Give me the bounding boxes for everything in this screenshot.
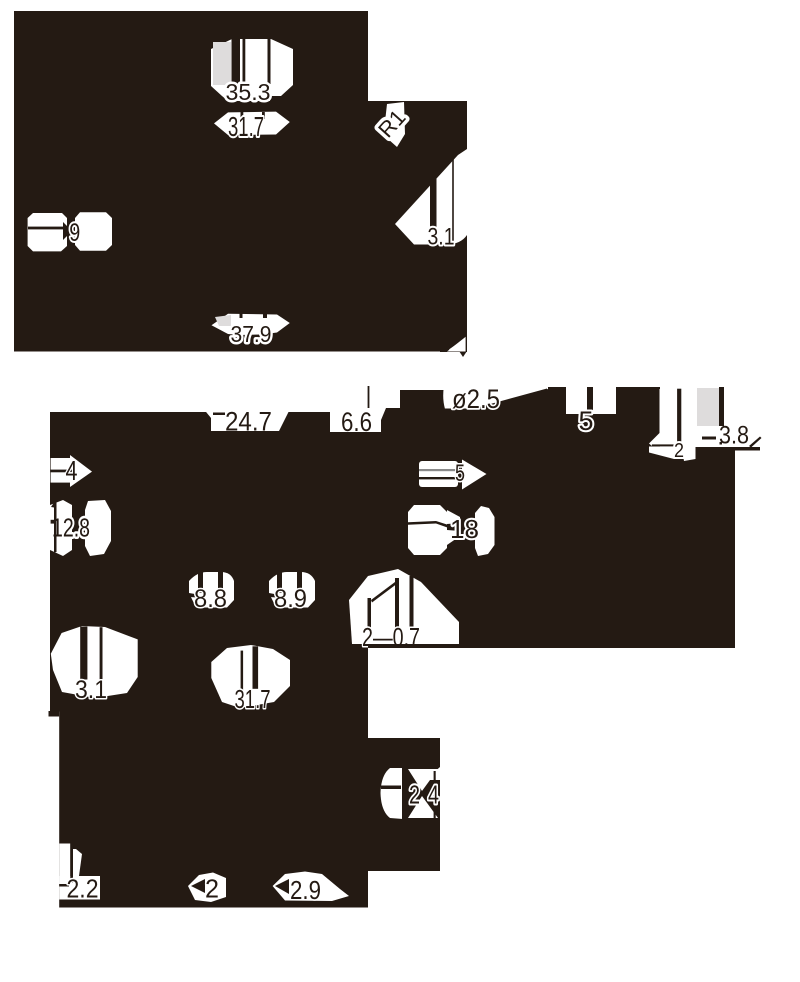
svg-text:ø2.5: ø2.5 bbox=[452, 384, 500, 414]
svg-text:3.1: 3.1 bbox=[75, 676, 107, 704]
svg-text:2: 2 bbox=[674, 440, 684, 462]
svg-text:9: 9 bbox=[69, 219, 80, 247]
svg-text:3.1: 3.1 bbox=[428, 224, 455, 251]
svg-text:4: 4 bbox=[428, 780, 439, 810]
svg-text:2.9: 2.9 bbox=[290, 875, 321, 905]
svg-text:18: 18 bbox=[450, 514, 479, 544]
svg-text:24.7: 24.7 bbox=[225, 407, 272, 437]
svg-text:5: 5 bbox=[455, 460, 465, 487]
svg-text:31.7: 31.7 bbox=[228, 111, 264, 142]
svg-text:2: 2 bbox=[205, 874, 219, 904]
svg-text:31.7: 31.7 bbox=[235, 684, 271, 714]
svg-text:4: 4 bbox=[66, 455, 78, 486]
svg-text:6.6: 6.6 bbox=[341, 407, 372, 437]
svg-text:2: 2 bbox=[409, 780, 420, 810]
svg-text:2.2: 2.2 bbox=[67, 874, 99, 904]
svg-text:3.8: 3.8 bbox=[719, 422, 749, 450]
svg-text:5: 5 bbox=[579, 406, 594, 436]
svg-text:8.8: 8.8 bbox=[194, 585, 227, 613]
svg-text:8.9: 8.9 bbox=[274, 585, 307, 613]
svg-text:12.8: 12.8 bbox=[52, 513, 90, 543]
svg-text:35.3: 35.3 bbox=[226, 79, 271, 105]
svg-text:37.9: 37.9 bbox=[231, 321, 272, 347]
